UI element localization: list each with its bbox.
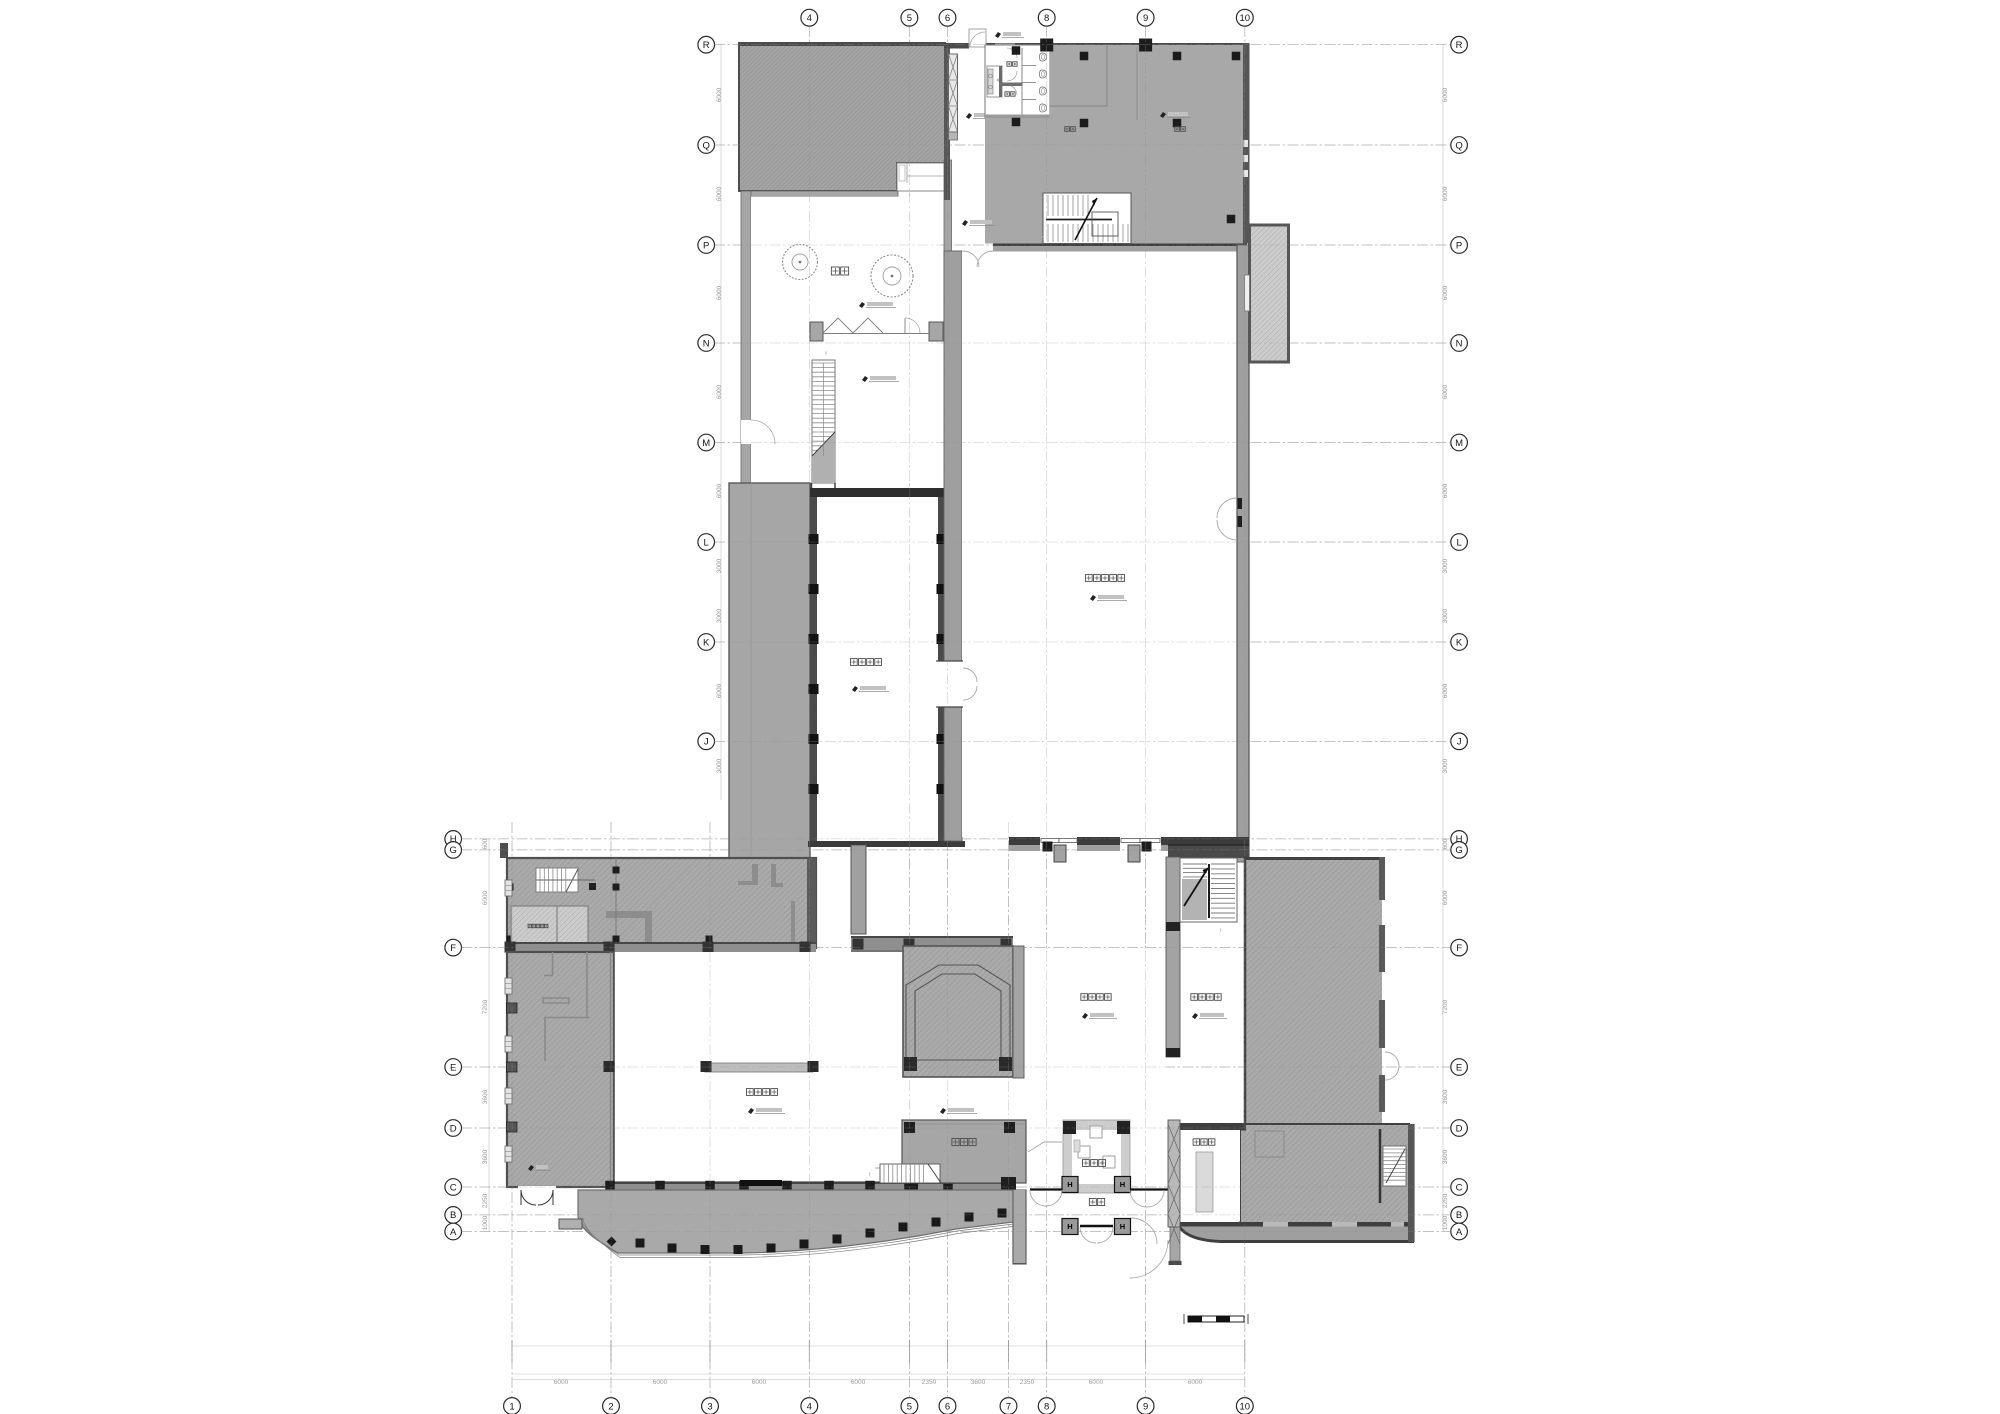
svg-text:6000: 6000: [1442, 87, 1449, 102]
svg-text:6000: 6000: [482, 890, 489, 905]
svg-text:6: 6: [945, 13, 950, 24]
svg-text:A: A: [1456, 1227, 1463, 1238]
svg-text:P: P: [1456, 240, 1462, 251]
svg-text:6000: 6000: [716, 384, 723, 399]
svg-text:6000: 6000: [1442, 683, 1449, 698]
svg-text:1: 1: [509, 1401, 514, 1412]
svg-text:N: N: [703, 338, 710, 349]
svg-text:5: 5: [907, 1401, 912, 1412]
svg-text:6000: 6000: [716, 285, 723, 300]
svg-text:G: G: [1455, 845, 1462, 856]
svg-text:2: 2: [1040, 235, 1044, 242]
svg-text:3000: 3000: [716, 758, 723, 773]
svg-text:2250: 2250: [1442, 1193, 1449, 1208]
svg-text:6000: 6000: [1442, 890, 1449, 905]
svg-text:D: D: [450, 1123, 457, 1134]
svg-text:Q: Q: [1455, 140, 1462, 151]
svg-text:3600: 3600: [482, 1149, 489, 1164]
svg-text:3000: 3000: [1442, 558, 1449, 573]
svg-text:J: J: [704, 737, 709, 748]
svg-text:2: 2: [608, 1401, 613, 1412]
svg-text:↑: ↑: [868, 1171, 871, 1178]
svg-text:6000: 6000: [1442, 186, 1449, 201]
svg-text:2250: 2250: [482, 1193, 489, 1208]
svg-text:8: 8: [1044, 13, 1049, 24]
svg-text:6000: 6000: [716, 87, 723, 102]
svg-text:4: 4: [807, 1401, 812, 1412]
svg-text:6000: 6000: [1442, 384, 1449, 399]
svg-text:6000: 6000: [1442, 483, 1449, 498]
svg-text:H: H: [1067, 1180, 1072, 1189]
svg-text:3600: 3600: [1442, 1089, 1449, 1104]
svg-text:H: H: [1067, 1222, 1072, 1231]
svg-text:2350: 2350: [1020, 1379, 1035, 1386]
svg-text:6000: 6000: [752, 1379, 767, 1386]
svg-text:J: J: [1457, 737, 1462, 748]
svg-text:6000: 6000: [716, 186, 723, 201]
svg-text:9: 9: [1143, 13, 1148, 24]
svg-text:6000: 6000: [716, 483, 723, 498]
svg-text:6000: 6000: [1089, 1379, 1104, 1386]
svg-text:6000: 6000: [554, 1379, 569, 1386]
svg-text:↑: ↑: [824, 350, 827, 357]
svg-text:3000: 3000: [716, 558, 723, 573]
svg-text:1000: 1000: [1442, 1215, 1449, 1230]
svg-text:H: H: [1120, 1222, 1125, 1231]
svg-text:F: F: [1456, 943, 1462, 954]
svg-text:10: 10: [1240, 13, 1251, 24]
svg-text:↑: ↑: [1219, 927, 1222, 934]
svg-text:R: R: [703, 40, 710, 51]
svg-text:3000: 3000: [1442, 608, 1449, 623]
svg-text:3000: 3000: [1442, 758, 1449, 773]
svg-text:600: 600: [482, 838, 489, 849]
svg-text:P: P: [703, 240, 709, 251]
svg-text:6000: 6000: [653, 1379, 668, 1386]
svg-text:E: E: [450, 1062, 456, 1073]
svg-text:M: M: [1455, 438, 1463, 449]
svg-text:K: K: [1456, 637, 1463, 648]
svg-text:6000: 6000: [851, 1379, 866, 1386]
svg-text:3600: 3600: [1442, 1149, 1449, 1164]
svg-text:6000: 6000: [1442, 285, 1449, 300]
svg-text:10: 10: [1240, 1401, 1251, 1412]
svg-text:E: E: [1456, 1062, 1462, 1073]
svg-text:G: G: [450, 845, 457, 856]
svg-text:B: B: [450, 1210, 456, 1221]
svg-text:3600: 3600: [482, 1089, 489, 1104]
svg-text:F: F: [450, 943, 456, 954]
svg-text:7: 7: [1006, 1401, 1011, 1412]
svg-text:H: H: [1120, 1180, 1125, 1189]
svg-text:3: 3: [707, 1401, 712, 1412]
svg-text:R: R: [1456, 40, 1463, 51]
svg-text:C: C: [450, 1182, 457, 1193]
svg-text:N: N: [1456, 338, 1463, 349]
svg-text:5: 5: [907, 13, 912, 24]
svg-text:6000: 6000: [716, 683, 723, 698]
svg-text:7200: 7200: [1442, 999, 1449, 1014]
svg-text:9: 9: [1143, 1401, 1148, 1412]
svg-text:600: 600: [1442, 838, 1449, 849]
svg-text:2350: 2350: [922, 1379, 937, 1386]
svg-text:8: 8: [1044, 1401, 1049, 1412]
svg-text:6: 6: [945, 1401, 950, 1412]
svg-text:4: 4: [807, 13, 812, 24]
svg-text:C: C: [1456, 1182, 1463, 1193]
svg-text:Q: Q: [703, 140, 710, 151]
svg-text:7200: 7200: [482, 999, 489, 1014]
svg-text:D: D: [1456, 1123, 1463, 1134]
svg-text:A: A: [450, 1227, 457, 1238]
svg-text:L: L: [704, 537, 709, 548]
svg-text:6000: 6000: [1188, 1379, 1203, 1386]
svg-text:B: B: [1456, 1210, 1462, 1221]
svg-text:3000: 3000: [716, 608, 723, 623]
svg-text:K: K: [703, 637, 710, 648]
svg-text:1000: 1000: [482, 1215, 489, 1230]
svg-text:M: M: [702, 438, 710, 449]
svg-text:3600: 3600: [971, 1379, 986, 1386]
svg-text:L: L: [1456, 537, 1461, 548]
